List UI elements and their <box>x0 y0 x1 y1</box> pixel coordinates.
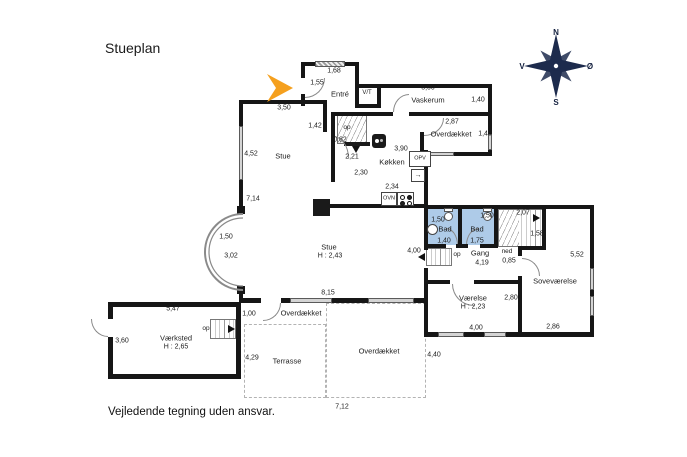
dim: H : 2,23 <box>461 304 486 311</box>
room-entre: Entré <box>331 90 349 98</box>
fixture-ovn-label: OVN <box>383 196 395 202</box>
room-terrasse: Terrasse <box>273 357 302 365</box>
room-vaerksted: Værksted <box>160 334 192 342</box>
dim: 7,14 <box>246 196 260 203</box>
dim: 4,00 <box>407 248 421 255</box>
floor-plan: Stueplan Vejledende tegning uden ansvar. <box>0 0 687 457</box>
dim: 2,80 <box>504 295 518 302</box>
room-vt: V/T <box>362 90 371 96</box>
dim: 2,21 <box>345 154 359 161</box>
labels-layer: 3,501,681,55EntréV/T5,00Vaskerum1,402,87… <box>0 0 687 457</box>
dim: 2,30 <box>354 170 368 177</box>
dim: 7,12 <box>335 404 349 411</box>
dim: 2,07 <box>516 210 530 217</box>
dim: H : 2,43 <box>318 253 343 260</box>
stair-label: op <box>202 326 209 333</box>
dim: 4,40 <box>427 352 441 359</box>
room-koekken: Køkken <box>379 158 404 166</box>
room-stue: Stue <box>275 152 290 160</box>
dim: 1,40 <box>471 97 485 104</box>
fixture-opv-label: OPV <box>414 156 426 162</box>
stair-label: ned <box>502 249 513 256</box>
dim: 1,40 <box>437 238 451 245</box>
dim: 1,50 <box>480 213 494 220</box>
dim: 1,75 <box>470 238 484 245</box>
dim: 3,02 <box>224 253 238 260</box>
room-vaerelse: Værelse <box>459 294 487 302</box>
room-vaskerum: Vaskerum <box>411 96 444 104</box>
room-sovevaerelse: Soveværelse <box>533 277 577 285</box>
dim: 2,86 <box>546 324 560 331</box>
dim: 3,50 <box>277 105 291 112</box>
dim: 4,29 <box>245 355 259 362</box>
dim: 1,00 <box>242 311 256 318</box>
dim: 4,19 <box>475 260 489 267</box>
dim: 1,58 <box>530 231 544 238</box>
dim: 5,00 <box>421 85 435 92</box>
dim: 2,87 <box>445 119 459 126</box>
dim: 8,15 <box>321 290 335 297</box>
dim: 4,52 <box>244 151 258 158</box>
dim: 0,82 <box>333 137 347 144</box>
dim: 1,55 <box>310 80 324 87</box>
room-bad-2: Bad <box>470 225 483 233</box>
dim: 4,00 <box>469 325 483 332</box>
dim: 1,48 <box>478 131 492 138</box>
dim: 3,60 <box>115 338 129 345</box>
dim: 5,47 <box>166 306 180 313</box>
dim: 5,52 <box>570 252 584 259</box>
room-overdaekket-ne: Overdækket <box>431 130 472 138</box>
room-bad-1: Bad <box>438 225 451 233</box>
dim: 0,85 <box>502 258 516 265</box>
room-overdaekket-s: Overdækket <box>359 347 400 355</box>
room-overdaekket-small: Overdækket <box>281 309 322 317</box>
dim: 1,50 <box>219 234 233 241</box>
dim: 1,68 <box>327 68 341 75</box>
room-gang: Gang <box>471 249 489 257</box>
dim: 1,42 <box>308 123 322 130</box>
stair-label: op <box>453 252 460 259</box>
room-stue-main: Stue <box>321 243 336 251</box>
dim: H : 2,65 <box>164 344 189 351</box>
dim: 2,34 <box>385 184 399 191</box>
dim: 3,90 <box>394 146 408 153</box>
dim: 1,50 <box>431 217 445 224</box>
stair-label: op <box>343 125 350 132</box>
